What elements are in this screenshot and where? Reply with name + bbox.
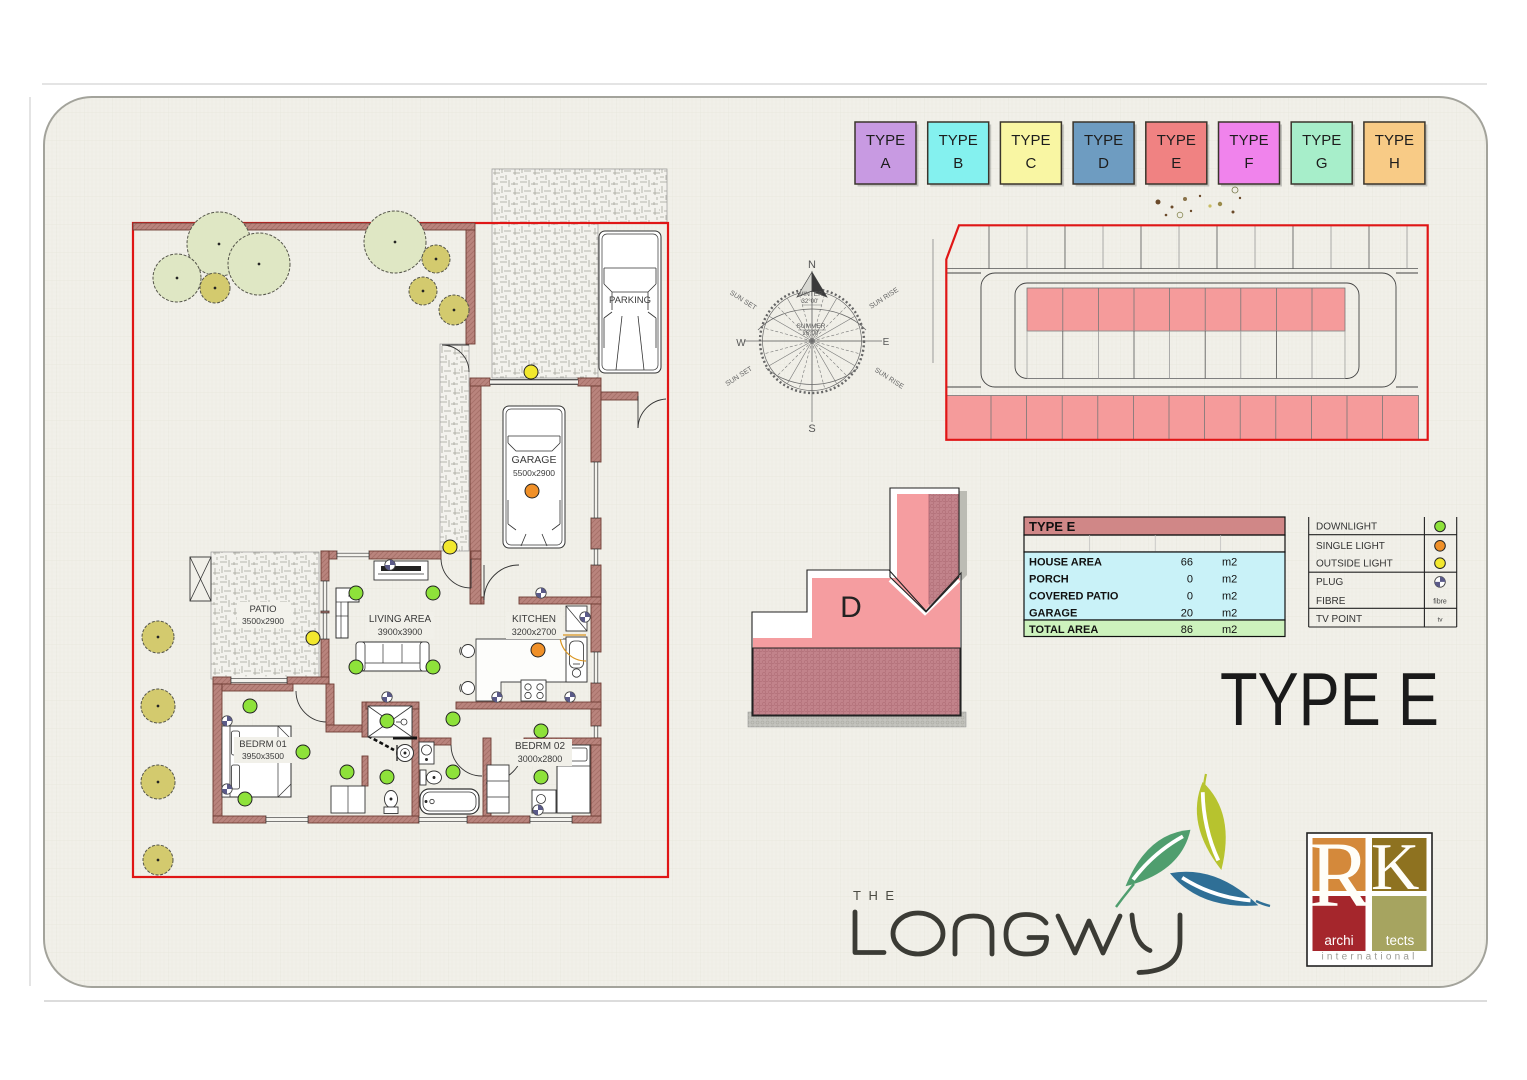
svg-text:A: A [880, 155, 890, 172]
svg-text:3900x3900: 3900x3900 [378, 627, 423, 637]
svg-text:R: R [1309, 824, 1371, 927]
svg-text:OUTSIDE LIGHT: OUTSIDE LIGHT [1316, 559, 1393, 570]
svg-text:TYPE: TYPE [939, 132, 978, 149]
svg-text:COVERED PATIO: COVERED PATIO [1029, 591, 1119, 603]
svg-text:TV POINT: TV POINT [1316, 614, 1362, 625]
svg-text:HOUSE AREA: HOUSE AREA [1029, 557, 1102, 569]
svg-text:TYPE: TYPE [1229, 132, 1268, 149]
svg-text:m2: m2 [1222, 624, 1237, 636]
svg-text:0: 0 [1187, 574, 1193, 586]
svg-text:PARKING: PARKING [609, 295, 651, 306]
svg-text:GARAGE: GARAGE [512, 454, 557, 466]
svg-text:S: S [808, 423, 815, 435]
svg-text:F: F [1244, 155, 1253, 172]
svg-text:PLUG: PLUG [1316, 577, 1343, 588]
svg-text:m2: m2 [1222, 557, 1237, 569]
svg-text:TYPE: TYPE [1375, 132, 1414, 149]
svg-text:66: 66 [1181, 557, 1193, 569]
svg-text:K: K [1371, 830, 1419, 904]
svg-text:N: N [808, 259, 816, 271]
svg-text:m2: m2 [1222, 574, 1237, 586]
svg-text:5500x2900: 5500x2900 [513, 468, 555, 478]
svg-text:archi: archi [1324, 933, 1353, 948]
svg-text:international: international [1321, 952, 1417, 963]
svg-text:20: 20 [1181, 608, 1193, 620]
svg-text:TYPE E: TYPE E [1029, 519, 1076, 534]
svg-text:TYPE E: TYPE E [1220, 657, 1439, 741]
svg-text:B: B [953, 155, 963, 172]
svg-text:TOTAL AREA: TOTAL AREA [1029, 624, 1098, 636]
svg-text:32°00': 32°00' [802, 299, 819, 305]
svg-text:THE: THE [853, 888, 902, 903]
svg-text:TYPE: TYPE [1011, 132, 1050, 149]
svg-text:3950x3500: 3950x3500 [242, 751, 284, 761]
svg-text:3500x2900: 3500x2900 [242, 616, 284, 626]
svg-text:FIBRE: FIBRE [1316, 596, 1346, 607]
svg-text:PATIO: PATIO [249, 604, 276, 615]
svg-text:KITCHEN: KITCHEN [512, 614, 556, 625]
svg-text:3200x2700: 3200x2700 [512, 627, 557, 637]
svg-text:W: W [736, 338, 746, 349]
svg-text:26°00': 26°00' [803, 331, 820, 337]
svg-text:H: H [1389, 155, 1400, 172]
svg-text:0: 0 [1187, 591, 1193, 603]
svg-text:C: C [1025, 155, 1036, 172]
svg-text:D: D [840, 591, 862, 624]
svg-text:tects: tects [1386, 933, 1415, 948]
svg-text:fibre: fibre [1433, 599, 1447, 606]
svg-text:LIVING AREA: LIVING AREA [369, 614, 432, 625]
svg-text:BEDRM 01: BEDRM 01 [239, 739, 287, 750]
svg-text:tv: tv [1437, 617, 1443, 624]
svg-text:86: 86 [1181, 624, 1193, 636]
svg-text:m2: m2 [1222, 591, 1237, 603]
svg-text:BEDRM 02: BEDRM 02 [515, 741, 565, 752]
svg-text:WINTER: WINTER [797, 291, 823, 298]
svg-text:E: E [1171, 155, 1181, 172]
svg-text:D: D [1098, 155, 1109, 172]
svg-text:SINGLE LIGHT: SINGLE LIGHT [1316, 541, 1385, 552]
svg-text:E: E [883, 337, 890, 348]
svg-text:G: G [1316, 155, 1328, 172]
svg-text:TYPE: TYPE [1157, 132, 1196, 149]
svg-text:DOWNLIGHT: DOWNLIGHT [1316, 522, 1377, 533]
svg-text:3000x2800: 3000x2800 [518, 754, 563, 764]
svg-text:m2: m2 [1222, 608, 1237, 620]
svg-text:PORCH: PORCH [1029, 574, 1069, 586]
svg-text:TYPE: TYPE [866, 132, 905, 149]
svg-text:SUMMER: SUMMER [797, 323, 826, 330]
svg-text:GARAGE: GARAGE [1029, 608, 1077, 620]
svg-text:TYPE: TYPE [1302, 132, 1341, 149]
svg-text:TYPE: TYPE [1084, 132, 1123, 149]
